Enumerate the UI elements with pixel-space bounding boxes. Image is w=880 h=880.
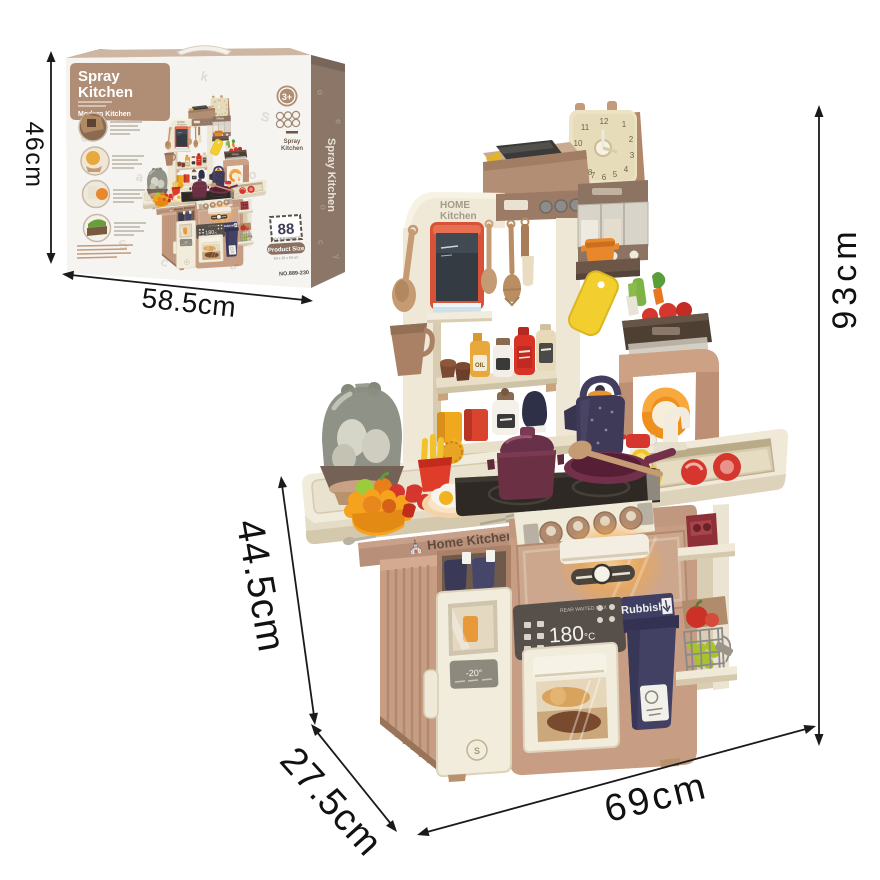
svg-text:4: 4: [624, 165, 629, 174]
svg-text:Spray: Spray: [284, 139, 301, 145]
svg-text:10: 10: [574, 139, 583, 148]
svg-text:6: 6: [602, 173, 607, 182]
svg-text:3: 3: [630, 151, 635, 160]
svg-text:5: 5: [613, 170, 618, 179]
svg-text:1: 1: [622, 120, 627, 129]
svg-text:7: 7: [591, 171, 596, 180]
svg-text:3+: 3+: [282, 92, 292, 102]
svg-text:93cm: 93cm: [826, 226, 864, 329]
svg-text:Spray Kitchen: Spray Kitchen: [325, 138, 337, 212]
svg-text:2: 2: [629, 135, 634, 144]
svg-text:Kitchen: Kitchen: [78, 84, 133, 101]
svg-text:Kitchen: Kitchen: [440, 211, 477, 222]
svg-text:S: S: [474, 746, 480, 756]
svg-text:Kitchen: Kitchen: [281, 146, 303, 152]
svg-text:12: 12: [600, 117, 609, 126]
svg-text:11: 11: [581, 123, 590, 132]
svg-text:c: c: [316, 239, 326, 245]
svg-text:OIL: OIL: [475, 363, 485, 369]
svg-text:46cm: 46cm: [20, 121, 48, 188]
svg-text:Spray: Spray: [78, 68, 120, 85]
svg-text:HOME: HOME: [440, 200, 470, 211]
svg-text:-20°: -20°: [466, 668, 483, 679]
